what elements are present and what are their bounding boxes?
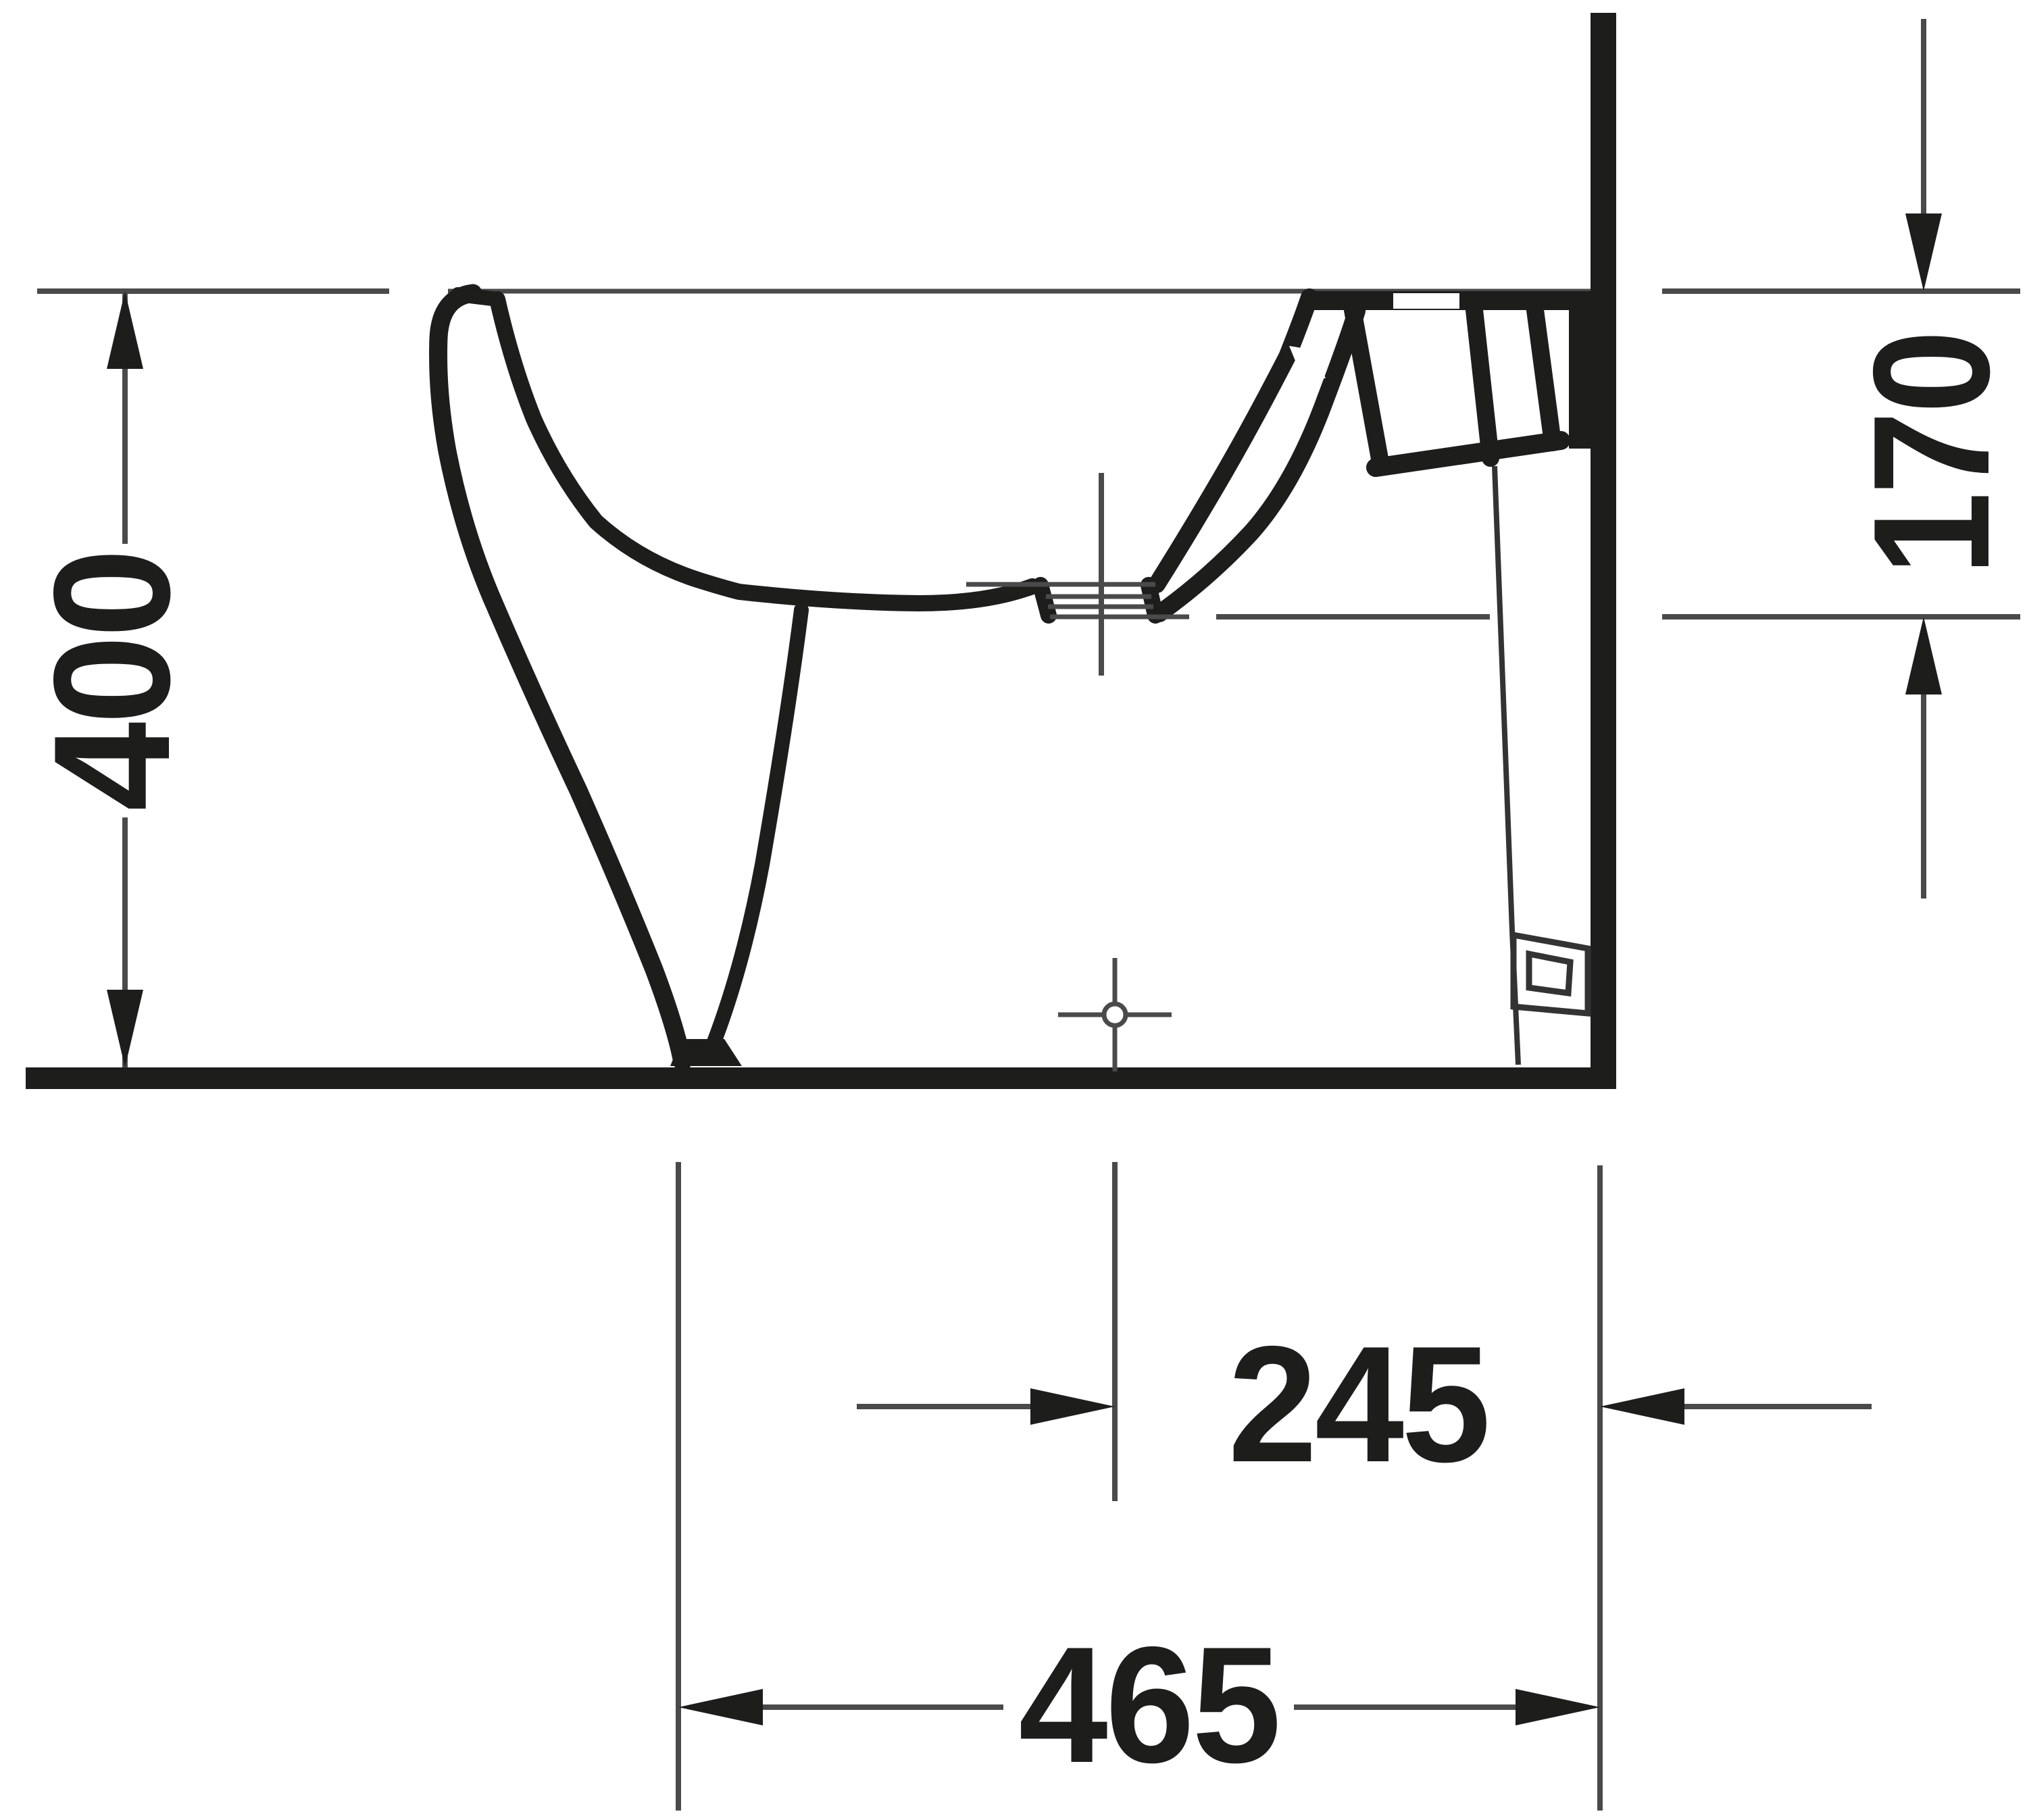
nozzle-left-wall: [1041, 585, 1049, 615]
rim-channel-bottom: [1376, 440, 1561, 467]
dim-245-arrow-right-icon: [1030, 1388, 1115, 1425]
dim-170-label: 170: [1838, 332, 2024, 576]
inner-bowl-line: [497, 299, 1032, 603]
drain-center-crosshair-icon: [1058, 958, 1172, 1071]
drain-outlet-box-inner: [1529, 954, 1570, 993]
rim-back-assembly: [1304, 291, 1591, 467]
wall-line: [1591, 13, 1616, 1089]
dimension-245: 245: [857, 1311, 1872, 1496]
dim-400-label: 400: [19, 551, 204, 811]
wall-contact-column: [1569, 310, 1591, 449]
bidet-dimension-diagram: 400 170 245 465: [0, 0, 2027, 1820]
dimension-400: 400: [19, 291, 204, 1067]
back-curve-slit: [1289, 346, 1326, 378]
technical-drawing-page: 400 170 245 465: [0, 0, 2027, 1820]
rim-bar-slot: [1393, 293, 1459, 309]
room-outline: [26, 13, 1616, 1089]
dim-400-arrow-up-icon: [107, 291, 143, 369]
dim-170-arrow-down-icon: [1905, 213, 1942, 291]
dimension-170: 170: [1838, 19, 2024, 899]
crosshair-circle: [1104, 1004, 1126, 1026]
rim-channel-left-wall: [1353, 310, 1381, 466]
fixture-back-detail: [1495, 466, 1588, 1065]
floor-line: [26, 1067, 1616, 1089]
nozzle-right-wall: [1149, 585, 1155, 615]
front-outer-outline: [439, 293, 682, 1062]
dim-245-label: 245: [1228, 1311, 1488, 1496]
bidet-profile: [439, 293, 1357, 1066]
pedestal-front-line: [709, 610, 801, 1054]
mounting-channel-wall: [1535, 310, 1553, 443]
dim-465-arrow-right-icon: [1516, 1689, 1600, 1725]
drain-outlet-box-outer: [1513, 935, 1588, 1013]
dim-400-arrow-down-icon: [107, 990, 143, 1067]
bowl-back-outer-curve: [1159, 311, 1357, 613]
foot-pad: [670, 1039, 742, 1066]
dim-465-label: 465: [1019, 1612, 1279, 1797]
dim-465-arrow-left-icon: [678, 1689, 763, 1725]
reference-lines: [37, 291, 2020, 617]
dim-170-arrow-up-icon: [1905, 617, 1942, 694]
rim-channel-right-wall: [1474, 310, 1491, 458]
dimension-465: 465: [678, 1612, 1600, 1797]
dim-245-arrow-left-icon: [1600, 1388, 1684, 1425]
